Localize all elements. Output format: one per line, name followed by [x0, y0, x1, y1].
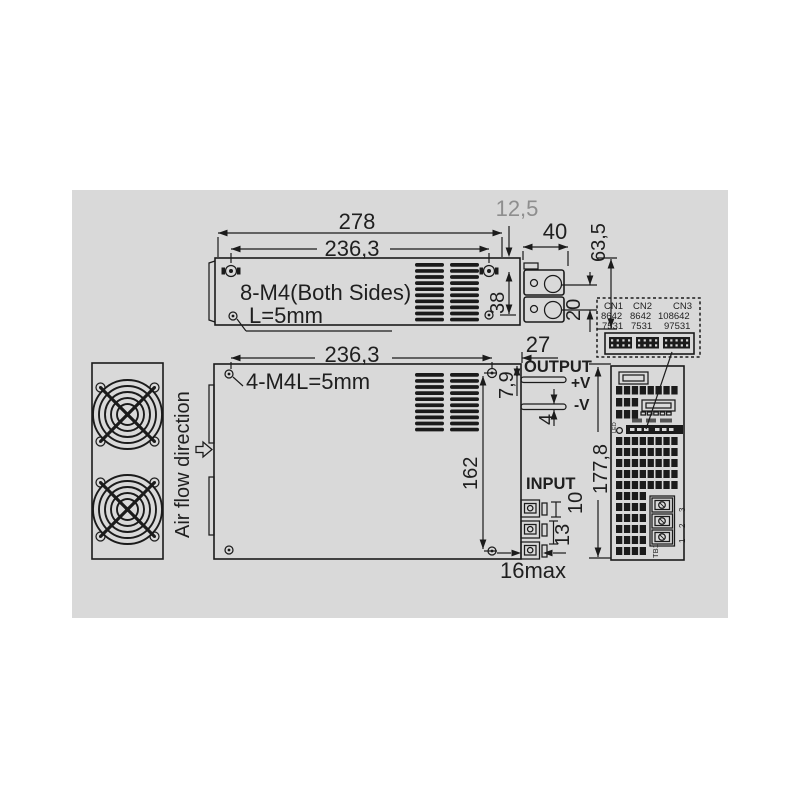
fan-screw-dot [153, 481, 156, 484]
vent-slot [415, 391, 444, 395]
vent-hole [663, 437, 669, 445]
detail-pin [628, 339, 630, 341]
dim-12-5: 12,5 [496, 196, 539, 221]
fan-screw-dot [99, 386, 102, 389]
fan-screw-dot [153, 535, 156, 538]
vent-hole [648, 470, 654, 478]
vent-hole [616, 525, 622, 533]
vent-hole [624, 492, 630, 500]
label-minus-v: -V [574, 397, 590, 414]
vent-slot [415, 312, 444, 316]
detail-pin [655, 339, 657, 341]
label-l5mm: L=5mm [249, 303, 323, 328]
vent-slot [450, 269, 479, 273]
label-airflow: Air flow direction [172, 391, 194, 538]
vent-hole [632, 536, 638, 544]
dim-16max: 16max [500, 558, 566, 583]
detail-connector-blocks [609, 337, 690, 349]
vent-hole [624, 448, 630, 456]
vent-hole [640, 492, 646, 500]
vent-slot [415, 287, 444, 291]
vent-hole [616, 470, 622, 478]
detail-pin [681, 339, 683, 341]
vent-hole [624, 459, 630, 467]
vent-hole [640, 459, 646, 467]
vent-slot [450, 263, 479, 267]
vent-hole [624, 470, 630, 478]
vent-hole [632, 470, 638, 478]
vent-hole [663, 448, 669, 456]
detail-pin [676, 344, 678, 346]
vent-hole [616, 481, 622, 489]
vent-slot [450, 403, 479, 407]
vent-hole [663, 386, 669, 395]
fan-screw-dot [99, 481, 102, 484]
vent-hole [640, 470, 646, 478]
vent-slot [415, 409, 444, 413]
vent-hole [616, 386, 622, 395]
dim-13: 13 [552, 524, 574, 546]
fan-screw-dot [99, 535, 102, 538]
fan-screw-dot [153, 386, 156, 389]
vent-hole [624, 386, 630, 395]
vent-hole [640, 386, 646, 395]
dim-162: 162 [460, 457, 482, 490]
vent-hole [624, 525, 630, 533]
micro-label-mark [660, 419, 672, 423]
vent-hole [632, 547, 638, 555]
vent-hole [671, 470, 677, 478]
vent-hole [632, 525, 638, 533]
vent-hole [671, 459, 677, 467]
vent-slot [450, 385, 479, 389]
dim-236-3-plan: 236,3 [324, 342, 379, 367]
vent-hole [616, 448, 622, 456]
vent-slot [450, 416, 479, 420]
vent-hole [656, 481, 662, 489]
vent-hole [648, 448, 654, 456]
vent-slot [415, 397, 444, 401]
vent-hole [656, 470, 662, 478]
vent-hole [640, 514, 646, 522]
vent-hole [616, 503, 622, 511]
label-input: INPUT [526, 475, 576, 493]
detail-pin [670, 344, 672, 346]
vent-hole [632, 459, 638, 467]
detail-pin [649, 344, 651, 346]
vent-slot [415, 416, 444, 420]
vent-hole [671, 448, 677, 456]
vent-hole [671, 386, 677, 395]
vent-hole [632, 492, 638, 500]
vent-slot [450, 373, 479, 377]
vent-slot [415, 318, 444, 322]
led-label: LED [612, 422, 618, 433]
vent-slot [450, 397, 479, 401]
cn2-pins-odd: 7531 [631, 321, 652, 332]
vent-hole [624, 410, 630, 419]
vent-slot [415, 299, 444, 303]
vent-hole [632, 410, 638, 419]
vent-slot [415, 293, 444, 297]
vent-hole [640, 481, 646, 489]
vent-hole [632, 448, 638, 456]
vent-hole [616, 398, 622, 407]
detail-pin [622, 339, 624, 341]
vent-slot [450, 275, 479, 279]
detail-block [609, 337, 632, 349]
vent-slot [450, 287, 479, 291]
vent-slot [450, 409, 479, 413]
dim-236-3-side: 236,3 [324, 236, 379, 261]
mechanical-drawing: 278 236,3 12,5 40 63,5 38 20 8-M4(Both S… [0, 0, 800, 800]
tb1-terminal-1: 1 [678, 538, 687, 543]
detail-pin [638, 339, 640, 341]
dim-40: 40 [543, 219, 567, 244]
vent-hole [616, 514, 622, 522]
vent-hole [624, 547, 630, 555]
detail-pin [665, 344, 667, 346]
vent-hole [616, 437, 622, 445]
vent-hole [663, 481, 669, 489]
label-plus-v: +V [571, 375, 591, 392]
vent-hole [640, 536, 646, 544]
label-output: OUTPUT [524, 358, 592, 376]
detail-pin [644, 339, 646, 341]
vent-slot [450, 428, 479, 432]
dim-27: 27 [526, 332, 550, 357]
vent-hole [624, 398, 630, 407]
vent-slot [415, 373, 444, 377]
detail-pin [681, 344, 683, 346]
vent-hole [648, 386, 654, 395]
micro-label-mark [632, 419, 642, 423]
vent-slot [450, 293, 479, 297]
vent-hole [624, 514, 630, 522]
vent-slot [450, 318, 479, 322]
vent-hole [640, 448, 646, 456]
detail-block [636, 337, 659, 349]
vent-hole [671, 481, 677, 489]
detail-pin [665, 339, 667, 341]
dim-38: 38 [487, 292, 509, 314]
strip-pin-mark [637, 428, 642, 431]
vent-hole [616, 536, 622, 544]
vent-hole [648, 481, 654, 489]
vent-hole [663, 470, 669, 478]
vent-slot [415, 385, 444, 389]
vent-hole [648, 437, 654, 445]
detail-pin [617, 339, 619, 341]
detail-pin [617, 344, 619, 346]
vent-hole [616, 410, 622, 419]
strip-pin-mark [662, 428, 667, 431]
vent-hole [648, 459, 654, 467]
vent-slot [415, 306, 444, 310]
vent-hole [632, 503, 638, 511]
detail-pin [655, 344, 657, 346]
vent-slot [415, 275, 444, 279]
vent-hole [616, 492, 622, 500]
dim-10: 10 [565, 492, 587, 514]
label-4m4: 4-M4L=5mm [246, 369, 370, 394]
tb1-terminal-2: 2 [678, 523, 687, 528]
vent-slot [450, 422, 479, 426]
vent-hole [616, 459, 622, 467]
vent-hole [624, 481, 630, 489]
detail-pin [676, 339, 678, 341]
cn3-pins-odd: 97531 [664, 321, 690, 332]
vent-slot [415, 428, 444, 432]
strip-pin-mark [630, 428, 635, 431]
vent-slot [415, 403, 444, 407]
vent-hole [656, 448, 662, 456]
vent-hole [663, 459, 669, 467]
vent-hole [656, 437, 662, 445]
detail-pin [644, 344, 646, 346]
vent-hole [632, 437, 638, 445]
vent-hole [640, 503, 646, 511]
vent-slot [415, 269, 444, 273]
dim-278: 278 [339, 209, 376, 234]
vent-slot [450, 379, 479, 383]
detail-pin [686, 344, 688, 346]
vent-hole [640, 547, 646, 555]
detail-pin [649, 339, 651, 341]
label-8m4: 8-M4(Both Sides) [240, 280, 411, 305]
detail-pin [670, 339, 672, 341]
vent-slot [450, 281, 479, 285]
vent-slot [415, 379, 444, 383]
dim-63-5: 63,5 [588, 223, 610, 262]
vent-slot [450, 299, 479, 303]
dim-177-8: 177,8 [590, 444, 612, 494]
vent-slot [450, 306, 479, 310]
tb1-terminal-3: 3 [678, 507, 687, 512]
fan-screw-dot [99, 440, 102, 443]
micro-label-mark [646, 419, 656, 423]
vent-hole [632, 386, 638, 395]
tb1-label: TB1 [651, 544, 660, 558]
vent-hole [632, 398, 638, 407]
vent-hole [632, 514, 638, 522]
detail-pin [611, 339, 613, 341]
vent-hole [656, 459, 662, 467]
vent-slot [415, 422, 444, 426]
vent-hole [624, 536, 630, 544]
vent-hole [640, 525, 646, 533]
connector-detail-box: CN1 CN2 CN3 8642 8642 108642 7531 7531 9… [597, 298, 700, 357]
vent-slot [450, 391, 479, 395]
detail-pin [622, 344, 624, 346]
vent-slot [415, 263, 444, 267]
strip-pin-mark [655, 428, 660, 431]
vent-slot [450, 312, 479, 316]
detail-pin [686, 339, 688, 341]
fan-screw-dot [153, 440, 156, 443]
detail-pin [638, 344, 640, 346]
detail-block [663, 337, 690, 349]
vent-hole [640, 437, 646, 445]
vent-hole [616, 547, 622, 555]
vent-hole [632, 481, 638, 489]
cn-connector-strip [626, 425, 683, 434]
strip-pin-mark [669, 428, 674, 431]
vent-slot [415, 281, 444, 285]
vent-hole [624, 437, 630, 445]
vent-hole [624, 503, 630, 511]
detail-pin [628, 344, 630, 346]
detail-pin [611, 344, 613, 346]
vent-hole [671, 437, 677, 445]
